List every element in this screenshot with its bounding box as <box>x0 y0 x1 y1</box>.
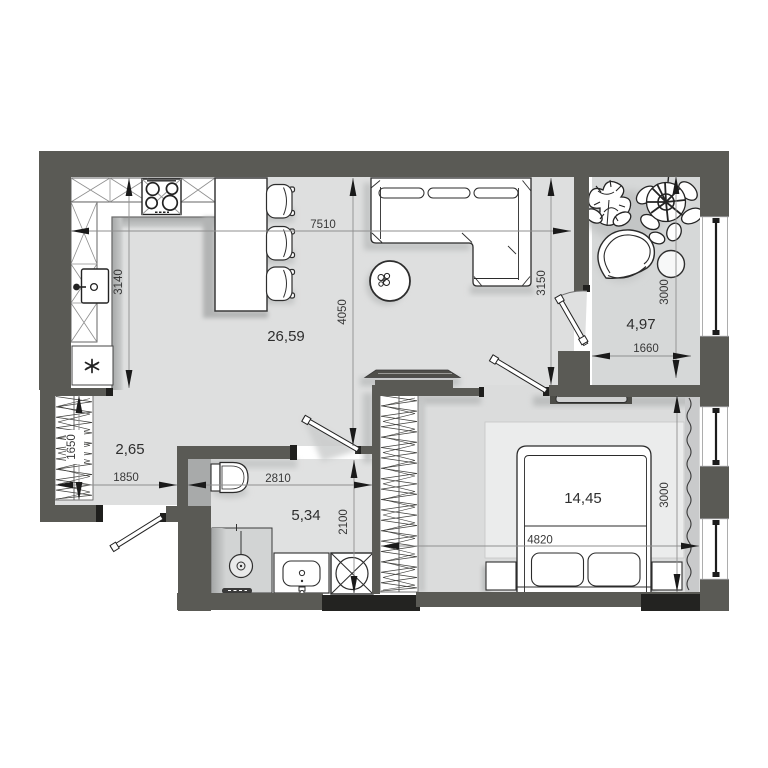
svg-text:7510: 7510 <box>310 219 336 231</box>
svg-text:4820: 4820 <box>527 535 553 547</box>
svg-text:2,65: 2,65 <box>115 441 144 458</box>
svg-text:26,59: 26,59 <box>267 328 305 345</box>
svg-text:4,97: 4,97 <box>626 316 655 333</box>
svg-text:1650: 1650 <box>66 434 78 460</box>
svg-text:1850: 1850 <box>113 472 139 484</box>
svg-text:2100: 2100 <box>338 509 350 535</box>
svg-text:4050: 4050 <box>337 299 349 325</box>
svg-text:3150: 3150 <box>536 270 548 296</box>
svg-text:3140: 3140 <box>113 269 125 295</box>
svg-text:1660: 1660 <box>633 343 659 355</box>
svg-text:2810: 2810 <box>265 473 291 485</box>
svg-text:5,34: 5,34 <box>291 507 320 524</box>
svg-text:3000: 3000 <box>659 482 671 508</box>
svg-text:14,45: 14,45 <box>564 490 602 507</box>
svg-text:3000: 3000 <box>659 279 671 305</box>
